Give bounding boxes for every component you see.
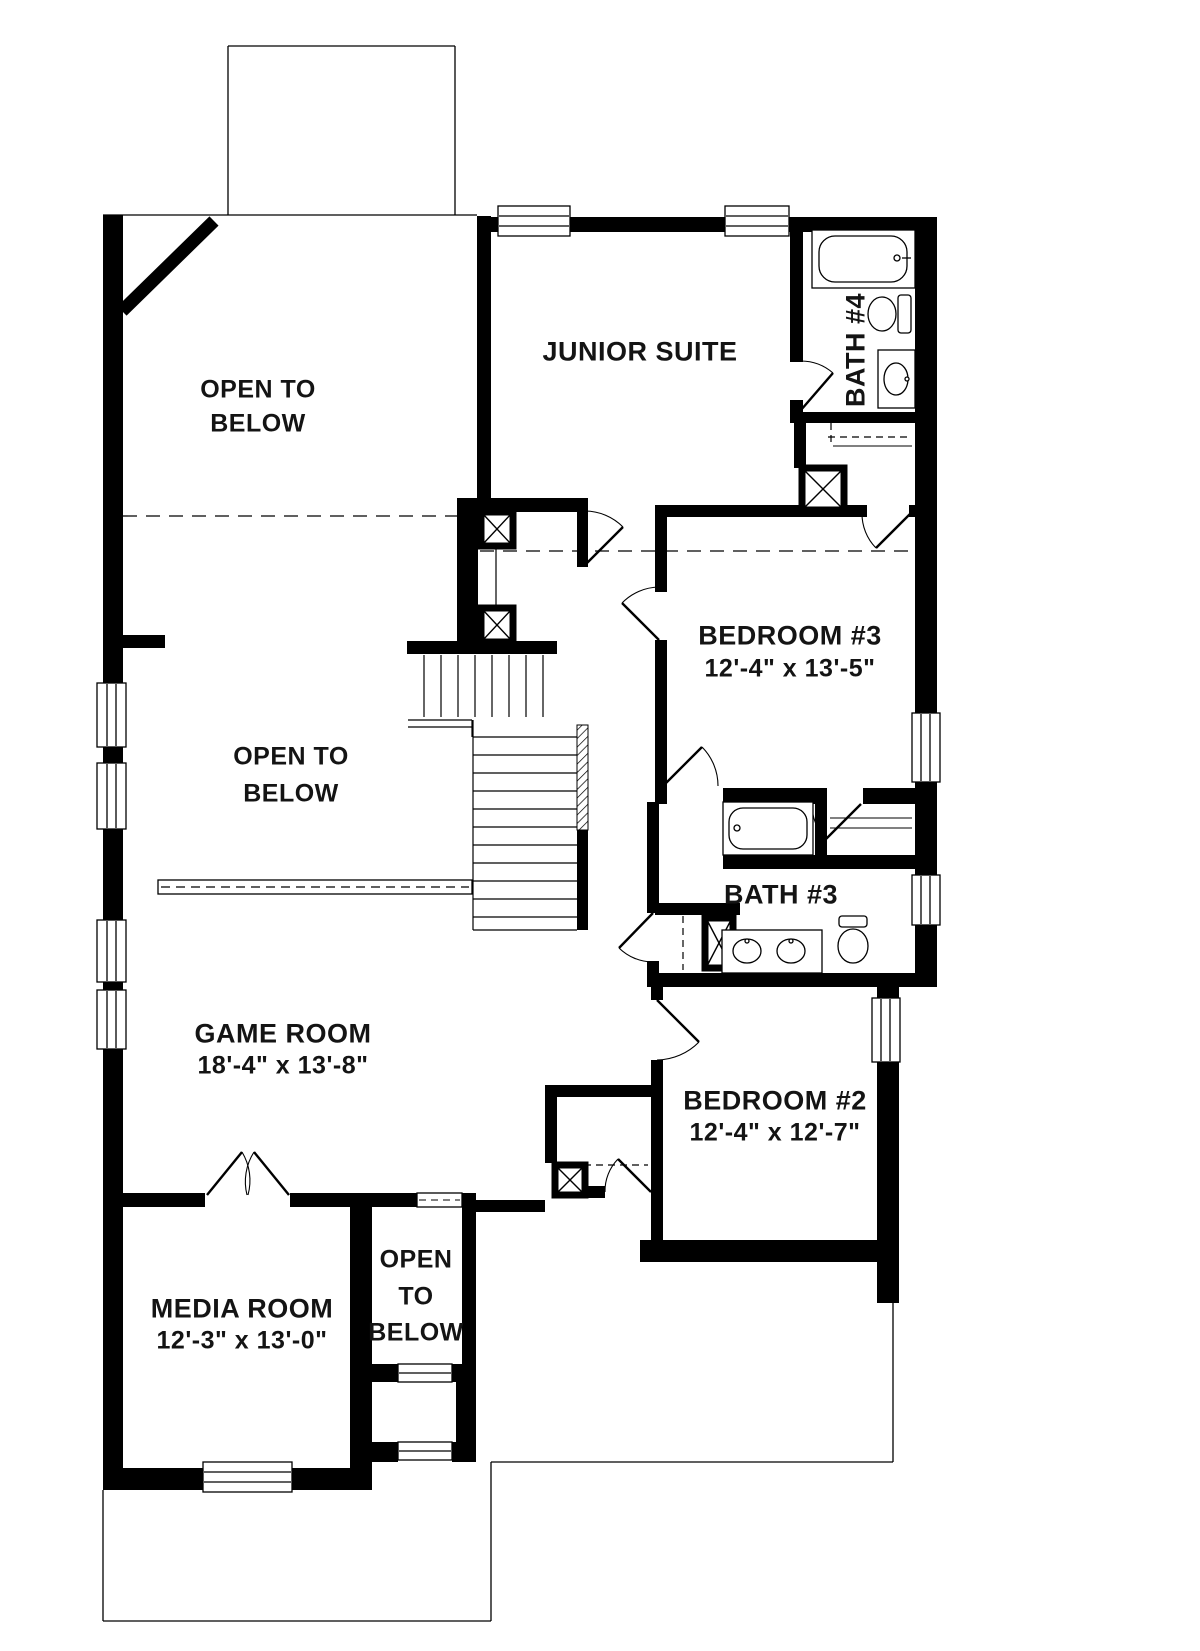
room-label-open-to-below-bottom-1: OPEN: [380, 1246, 453, 1275]
french-doors-media-room: [207, 1152, 289, 1195]
toilet-icon: [838, 916, 868, 963]
door-bedroom2: [657, 1000, 699, 1060]
room-label-open-to-below-top-1: OPEN TO: [200, 376, 316, 405]
window-symbol: [398, 1364, 452, 1382]
room-label-bedroom-2: BEDROOM #2: [683, 1086, 867, 1117]
room-label-bedroom-3: BEDROOM #3: [698, 621, 882, 652]
floorplan-drawing: [0, 0, 1200, 1651]
shaft-top-opening: [417, 1193, 462, 1207]
window-symbol: [97, 920, 126, 982]
room-label-game-room: GAME ROOM: [195, 1019, 372, 1050]
room-label-open-to-below-mid-1: OPEN TO: [233, 743, 349, 772]
floor-plan-page: OPEN TO BELOW JUNIOR SUITE BATH #4 BEDRO…: [0, 0, 1200, 1651]
room-dims-bedroom-3: 12'-4" x 13'-5": [705, 655, 876, 684]
room-label-bath-3: BATH #3: [724, 880, 838, 911]
chase-x-marker: [481, 608, 513, 642]
stair-half-wall: [577, 725, 588, 830]
window-symbol: [97, 683, 126, 747]
door-junior-suite: [585, 511, 623, 565]
window-symbol: [912, 713, 940, 782]
door-bedroom2-closet: [605, 1159, 651, 1192]
room-label-open-to-below-bottom-2: TO: [398, 1283, 433, 1312]
room-label-open-to-below-top-2: BELOW: [210, 410, 306, 439]
room-dims-media-room: 12'-3" x 13'-0": [157, 1327, 328, 1356]
sink-icon: [878, 350, 915, 408]
room-dims-game-room: 18'-4" x 13'-8": [198, 1052, 369, 1081]
door-hall-bedroom3-left: [622, 587, 659, 640]
room-label-media-room: MEDIA ROOM: [151, 1294, 334, 1325]
chase-x-marker: [802, 468, 844, 510]
window-symbol: [97, 763, 126, 829]
window-symbol: [872, 998, 900, 1062]
room-label-junior-suite: JUNIOR SUITE: [542, 337, 737, 368]
window-symbol: [725, 206, 789, 236]
door-bedroom3-top: [862, 513, 911, 548]
door-bath3-entry: [619, 913, 653, 962]
window-symbol: [912, 875, 940, 925]
bathtub-icon: [723, 802, 813, 855]
window-symbol: [498, 206, 570, 236]
chase-x-marker: [481, 512, 513, 546]
bathtub-icon: [812, 230, 915, 288]
door-bath4: [801, 361, 833, 410]
dashed-lines: [123, 516, 915, 551]
room-dims-bedroom-2: 12'-4" x 12'-7": [690, 1119, 861, 1148]
room-label-bath-4: BATH #4: [841, 293, 872, 407]
room-label-open-to-below-bottom-3: BELOW: [368, 1319, 464, 1348]
window-symbol: [398, 1442, 452, 1460]
window-symbol: [97, 990, 126, 1049]
door-bedroom3-bottom: [663, 747, 718, 786]
window-symbol: [203, 1462, 292, 1492]
railing-open-to-below: [158, 880, 472, 894]
toilet-icon: [868, 295, 911, 333]
double-sink-icon: [722, 930, 822, 973]
diagonal-wall: [122, 221, 214, 311]
room-label-open-to-below-mid-2: BELOW: [243, 780, 339, 809]
chase-x-marker: [555, 1165, 585, 1195]
